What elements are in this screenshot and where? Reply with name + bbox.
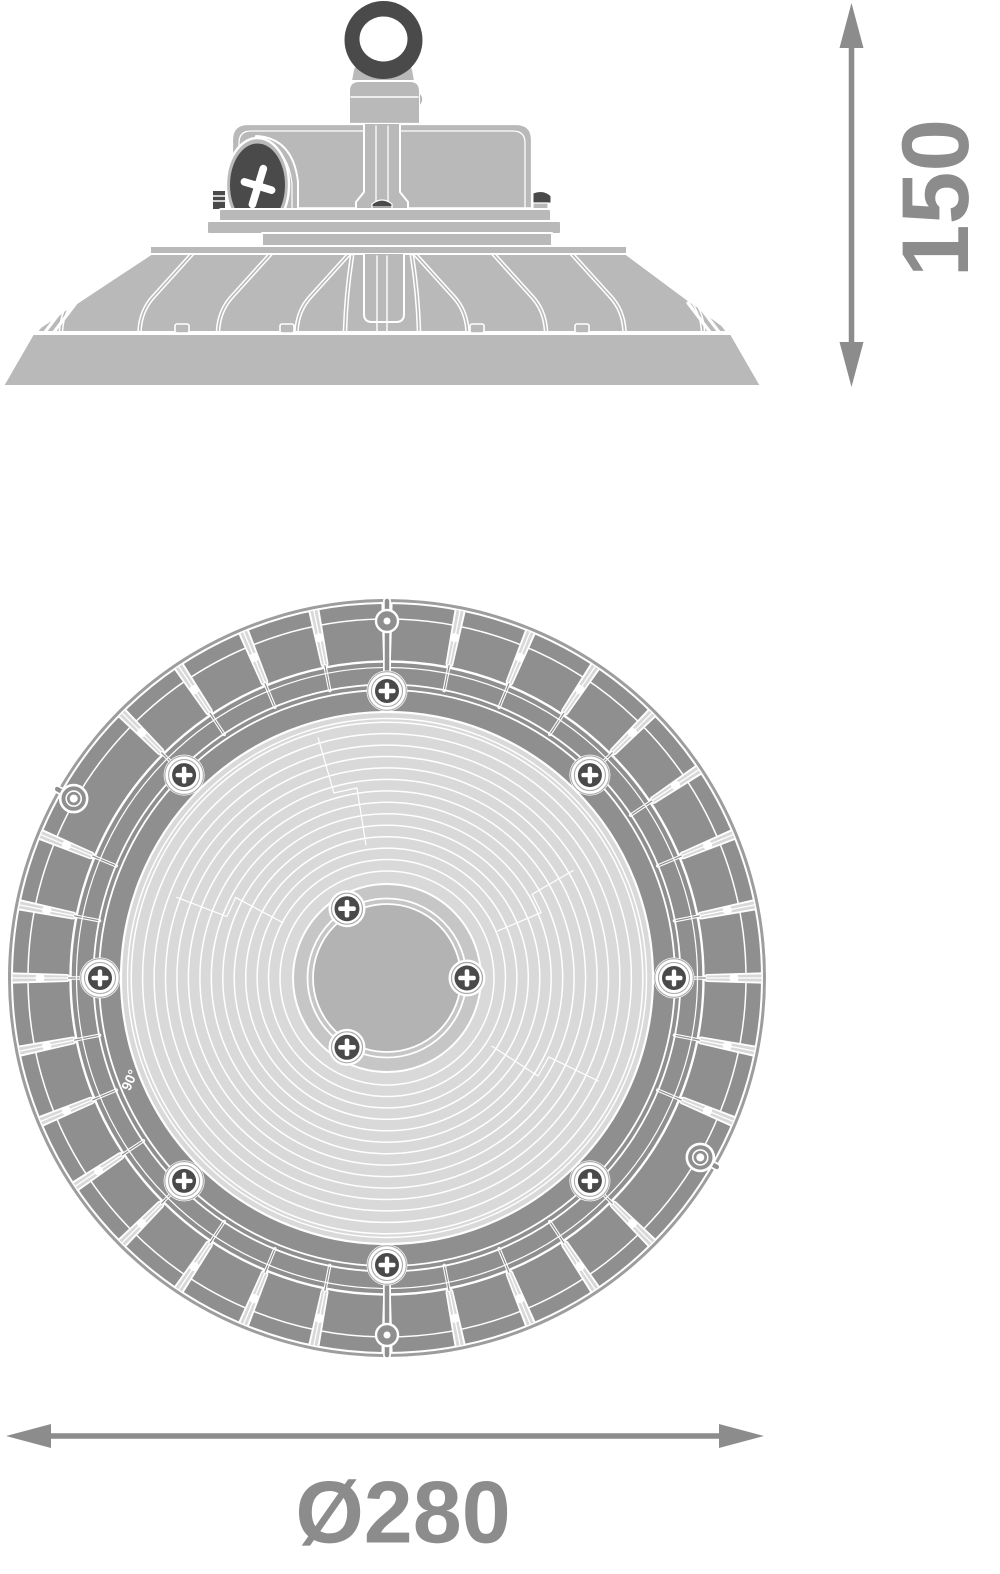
svg-text:150: 150 — [883, 119, 989, 278]
svg-text:Ø280: Ø280 — [295, 1463, 510, 1562]
